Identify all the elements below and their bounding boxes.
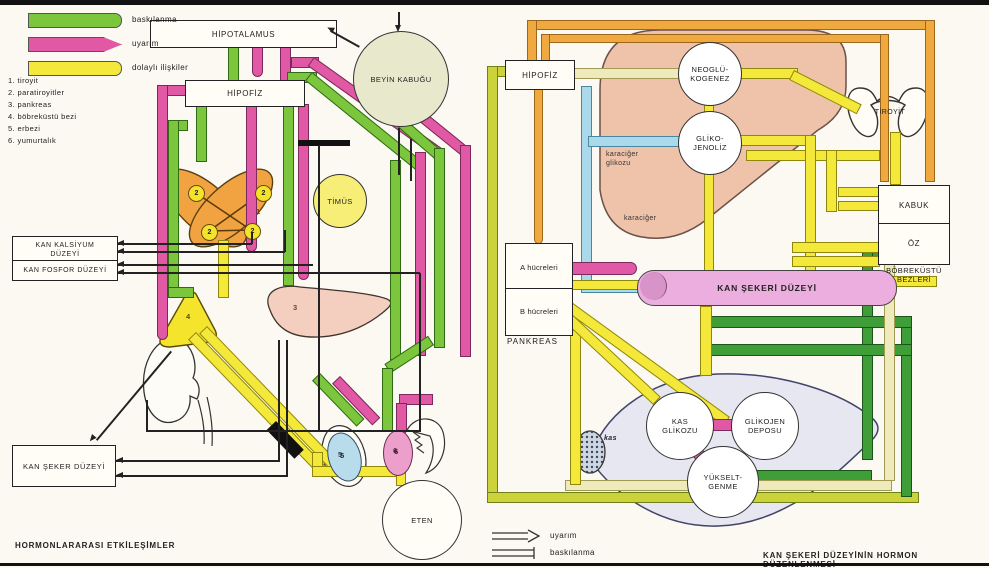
pipe-green-left-elbow: [168, 287, 194, 298]
pipe-magenta-acells-cylinder: [571, 262, 637, 275]
legend-swatch-dolayli: [28, 61, 122, 76]
line-pancreas-sugar-v1: [278, 340, 280, 461]
line-fosfor-2: [117, 272, 420, 274]
kan-fosfor-box: KAN FOSFOR DÜZEYİ: [12, 260, 118, 281]
glikojenoliz-circle: GLİKO- JENOLİZ: [678, 111, 742, 175]
pipe-green-bar-2: [710, 344, 912, 356]
baskilanma-legend-icon: [490, 546, 542, 560]
beyin-kabugu-label: BEYİN KABUĞU: [370, 75, 431, 84]
kan-kalsiyum-line2: DÜZEYİ: [50, 250, 79, 259]
baskilanma-legend-label: baskılanma: [550, 548, 595, 557]
pipe-magenta-bundle-v4: [460, 145, 471, 357]
pipe-yellow-kabuk-h1: [838, 187, 880, 197]
legend-swatch-baskilanma: [28, 13, 122, 28]
pipe-green-bundle-v1: [390, 160, 401, 360]
pipe-magenta-hipofiz-pancreas: [298, 104, 309, 280]
pipe-yellow-maze-h1: [740, 135, 812, 146]
pipe-green-bar-1: [710, 316, 912, 328]
paratiroyit-circle-2: 2: [255, 185, 272, 202]
pipe-yellow-maze-v2: [826, 150, 837, 212]
pipe-magenta-bundle-v2: [415, 152, 426, 356]
line-cortex-below-1: [398, 128, 400, 175]
kan-sekeri-cylinder: KAN ŞEKERİ DÜZEYİ: [637, 270, 897, 306]
kas-label: kas: [604, 434, 617, 443]
pipe-yellow-gliko-cylinder: [704, 172, 714, 274]
yukselt-line2: GENME: [708, 482, 738, 491]
erbezi-number-front: 5: [340, 451, 344, 460]
scan-bottom-bar: [0, 563, 989, 566]
glikojen-deposu-circle: GLİKOJEN DEPOSU: [731, 392, 799, 460]
paratiroyit-number: 2: [208, 229, 212, 236]
line-feedback-left-v: [146, 400, 148, 431]
kan-fosfor-label: KAN FOSFOR DÜZEYİ: [23, 266, 106, 275]
black-crossbar: [298, 140, 350, 146]
hipotalamus-label: HİPOTALAMUS: [212, 30, 275, 39]
neogluko-line1: NEOGLÜ-: [692, 65, 729, 74]
glikojenoliz-line2: JENOLİZ: [693, 143, 727, 152]
line-calcium-2: [117, 251, 285, 253]
line-fosfor-1: [117, 264, 313, 266]
neogluko-circle: NEOGLÜ- KOGENEZ: [678, 42, 742, 106]
legend-swatch-uyarim: [28, 37, 122, 52]
glikojen-line2: DEPOSU: [748, 426, 782, 435]
cylinder-left-cap: [640, 272, 667, 300]
oz-label: ÖZ: [908, 239, 920, 248]
karaciger-glikozu-line2: glikozu: [606, 159, 638, 168]
hipotalamus-box: HİPOTALAMUS: [150, 20, 337, 48]
tiroyit-number: 1: [256, 207, 260, 216]
a-hucreleri-label: A hücreleri: [520, 263, 558, 272]
pipe-orange-outer-top: [527, 20, 935, 30]
line-calcium-1v: [251, 232, 253, 244]
pipe-yellow-kabuk-h2: [838, 201, 880, 211]
kan-seker-box: KAN ŞEKER DÜZEYİ: [12, 445, 116, 487]
pankreas-label: PANKREAS: [507, 337, 558, 346]
tiroyit-label-right: TİROYİT: [862, 108, 918, 117]
yumurtalik-number-front: 6: [394, 447, 398, 456]
arrow-fosfor-1: [117, 261, 124, 267]
pipe-cream-hipofiz-neogluko: [572, 68, 682, 79]
pipe-yellow-cylinder-muscle: [700, 306, 712, 376]
a-hucreleri-box: A hücreleri: [505, 243, 573, 291]
bobrekustu-line2: BEZLERİ: [866, 275, 962, 284]
b-hucreleri-box: B hücreleri: [505, 288, 573, 336]
karaciger-glikozu-line1: karaciğer: [606, 150, 638, 159]
neogluko-line2: KOGENEZ: [690, 74, 729, 83]
glikojenoliz-line1: GLİKO-: [696, 134, 724, 143]
timus-label: TİMÜS: [327, 197, 352, 206]
paratiroyit-number: 2: [262, 190, 266, 197]
hipofiz-box-right: HİPOFİZ: [505, 60, 575, 90]
oz-box: ÖZ: [878, 223, 950, 265]
pipe-yellow-oz-h1: [792, 242, 880, 253]
scan-top-bar: [0, 0, 989, 5]
line-cortex-below-2: [410, 139, 412, 181]
kan-sekeri-cylinder-label: KAN ŞEKERİ DÜZEYİ: [717, 283, 817, 293]
pipe-orange-inner-left: [541, 34, 550, 62]
legend-label-uyarim: uyarım: [132, 39, 159, 48]
arrow-calcium-2: [117, 248, 124, 254]
kabuk-label: KABUK: [899, 201, 929, 210]
kas-glikozu-line1: KAS: [672, 417, 688, 426]
left-caption: HORMONLARARASI ETKİLEŞİMLER: [15, 541, 175, 550]
organ-list-item-3: 3. pankreas: [8, 100, 52, 109]
hipofiz-label-right: HİPOFİZ: [522, 71, 558, 80]
legend-label-dolayli: dolaylı ilişkiler: [132, 63, 188, 72]
arrow-fosfor-2: [117, 269, 124, 275]
kan-seker-label: KAN ŞEKER DÜZEYİ: [23, 462, 105, 471]
line-timus-pancreas-v: [318, 145, 320, 431]
pipe-magenta-hypothalamus-hipofiz: [252, 46, 263, 77]
arrow-sugar-2: [116, 472, 123, 478]
kas-glikozu-circle: KAS GLİKOZU: [646, 392, 714, 460]
pipe-green-hypothalamus-hipofiz: [228, 46, 239, 81]
pipe-orange-outer-left: [527, 20, 537, 62]
timus-circle: TİMÜS: [313, 174, 367, 228]
bobrekustu-label: BÖBREKÜSTÜ BEZLERİ: [866, 266, 962, 284]
glikojen-line1: GLİKOJEN: [745, 417, 785, 426]
eten-label: ETEN: [411, 516, 433, 525]
pipe-yellow-bcells-down: [570, 330, 581, 485]
pankreas-number: 3: [293, 303, 297, 312]
pipe-green-hipofiz-thyroidleft: [196, 104, 207, 162]
organ-list-item-2: 2. paratiroyitler: [8, 88, 64, 97]
hipofiz-box-left: HİPOFİZ: [185, 80, 305, 107]
eten-circle: ETEN: [382, 480, 462, 560]
paratiroyit-circle-3: 2: [201, 224, 218, 241]
uyarim-legend-label: uyarım: [550, 531, 577, 540]
pipe-magenta-left-vertical: [157, 85, 168, 340]
legend-label-baskilanma: baskılanma: [132, 15, 177, 24]
pipe-green-to-ovary: [382, 368, 393, 432]
karaciger-glikozu-label: karaciğer glikozu: [606, 150, 638, 168]
hipofiz-label-left: HİPOFİZ: [227, 89, 263, 98]
line-cortex-top-arrow: [398, 12, 400, 26]
karaciger-label: karaciğer: [624, 214, 656, 223]
organ-list-item-4: 4. böbreküstü bezi: [8, 112, 77, 121]
line-sugar-2: [116, 475, 288, 477]
organ-list-item-6: 6. yumurtalık: [8, 136, 56, 145]
paratiroyit-circle-4: 2: [244, 223, 261, 240]
line-pancreas-sugar-v2: [286, 340, 288, 476]
yukseltgenme-circle: YÜKSELT- GENME: [687, 446, 759, 518]
arrow-calcium-1: [117, 240, 124, 246]
bobrekustu-line1: BÖBREKÜSTÜ: [866, 266, 962, 275]
pipe-yellow-thyroid-adrenal: [218, 240, 229, 298]
kan-kalsiyum-line1: KAN KALSİYUM: [36, 241, 95, 250]
b-hucreleri-label: B hücreleri: [520, 307, 558, 316]
bobrekustu-number: 4: [186, 312, 190, 321]
line-calcium-1: [117, 243, 252, 245]
kabuk-box: KABUK: [878, 185, 950, 226]
pipe-yellow-tiroyit-kabuk: [890, 132, 901, 185]
kas-glikozu-line2: GLİKOZU: [662, 426, 698, 435]
pipe-orange-outer-right: [925, 20, 935, 182]
textbook-diagram-page: baskılanma uyarım dolaylı ilişkiler 1. t…: [0, 0, 989, 568]
line-feedback-bottom-h: [146, 430, 421, 432]
line-sugar-1: [116, 460, 280, 462]
yukselt-line1: YÜKSELT-: [704, 473, 743, 482]
pipe-orange-hipofiz-acells: [534, 88, 543, 244]
line-calcium-2v: [284, 230, 286, 252]
pipe-green-hipofiz-pancreas: [283, 104, 294, 286]
pipe-olive-left-vertical: [487, 66, 498, 498]
organ-list-item-1: 1. tiroyit: [8, 76, 38, 85]
beyin-kabugu-circle: BEYİN KABUĞU: [353, 31, 449, 127]
paratiroyit-number: 2: [195, 190, 199, 197]
line-feedback-right-v: [419, 273, 421, 431]
uyarim-legend-icon: [490, 529, 542, 543]
pipe-blue-into-liver: [588, 136, 684, 147]
organ-list-item-5: 5. erbezi: [8, 124, 40, 133]
arrow-sugar-1: [116, 457, 123, 463]
pipe-green-bundle-v3: [434, 148, 445, 348]
arrow-into-cortex: [395, 25, 401, 32]
pipe-yellow-acells-cylinder: [571, 280, 639, 290]
paratiroyit-circle-1: 2: [188, 185, 205, 202]
